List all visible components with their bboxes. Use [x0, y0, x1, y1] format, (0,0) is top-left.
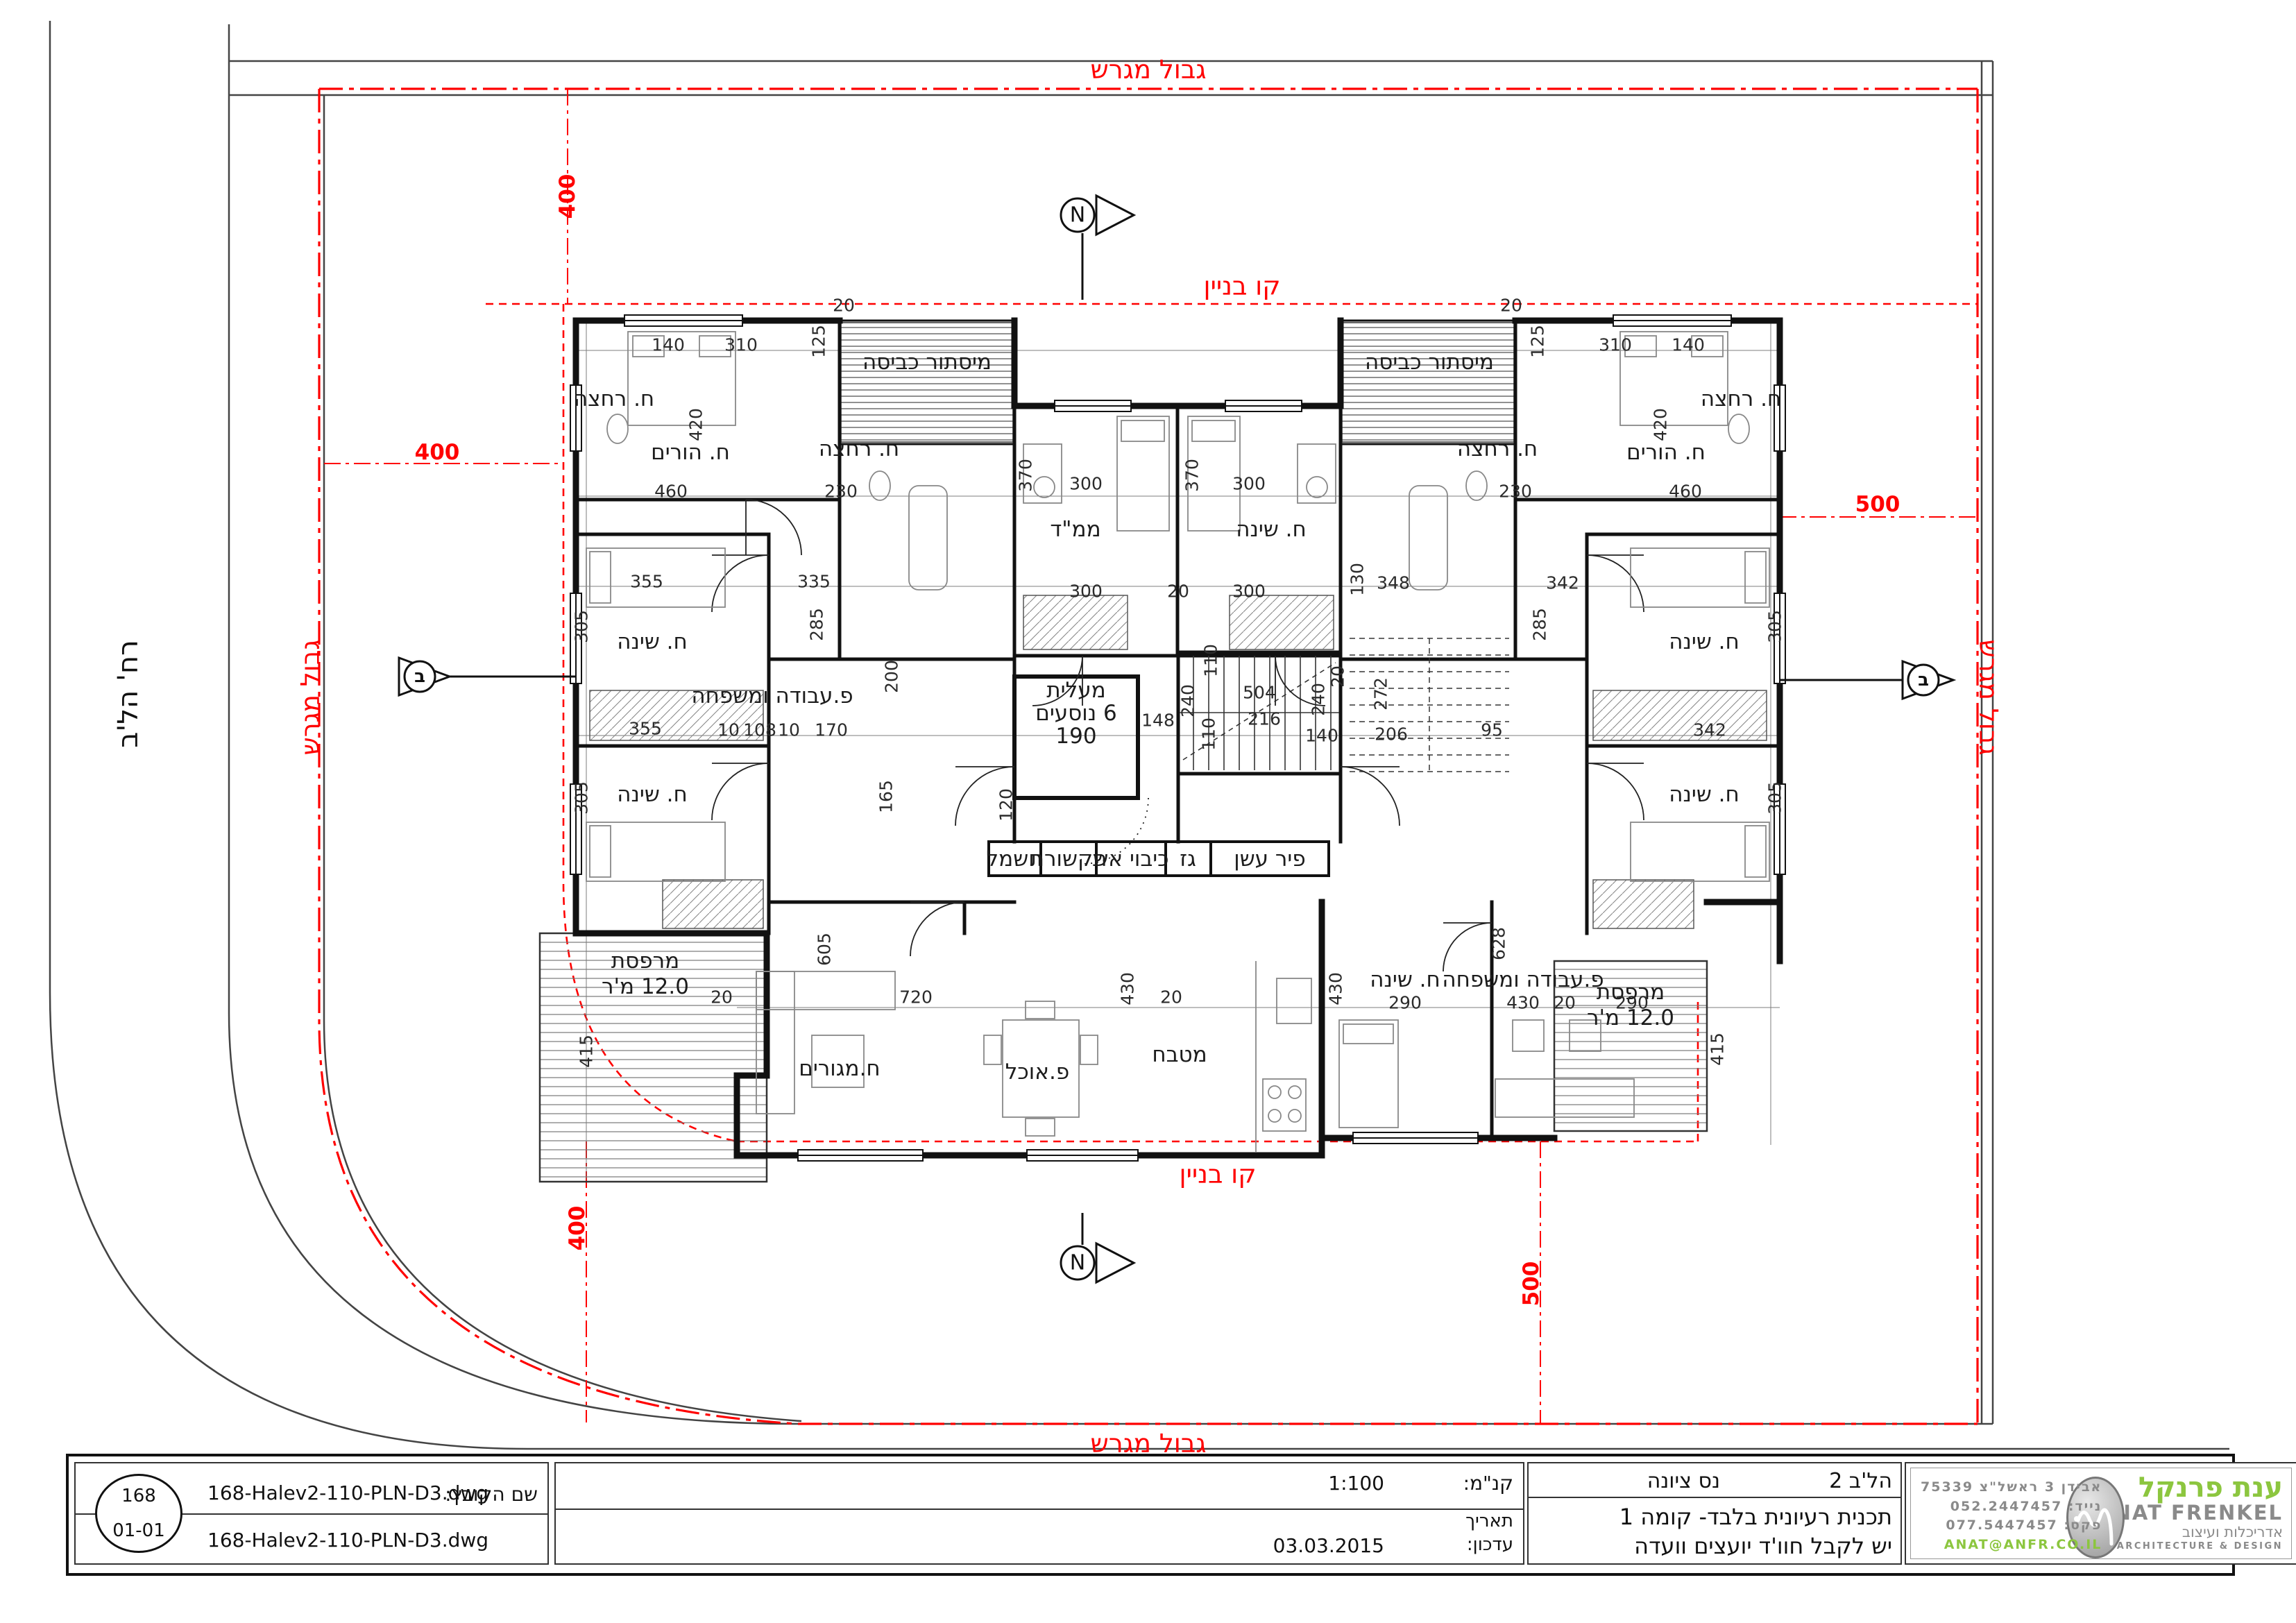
dim-label: 310: [724, 335, 758, 355]
room-label: כיבוי אש: [1093, 847, 1168, 872]
architect-fax: פקס: 077.5447457: [1921, 1516, 2102, 1536]
dim-label: 355: [630, 572, 663, 592]
dim-label: 20: [1554, 993, 1576, 1013]
room-label: ח. הורים: [651, 440, 730, 465]
room-label: מיסתור כביסה: [862, 350, 992, 375]
architect-email: ANAT@ANFR.CO.IL: [1921, 1536, 2102, 1555]
room-label: ח. שינה: [1669, 629, 1740, 654]
dim-label: 300: [1069, 474, 1103, 494]
room-label: 12.0 מ'ר: [602, 974, 689, 999]
plot-boundary-label-right: גבול מגרש: [1974, 640, 2004, 756]
architect-address: אבידן 3 ראשל"צ 75339: [1921, 1478, 2102, 1497]
dim-label: 110: [1201, 644, 1221, 677]
dim-label: 305: [572, 781, 592, 815]
dim-label: 415: [577, 1035, 597, 1068]
room-label: ח. רחצה: [1701, 386, 1781, 411]
dim-label: 342: [1693, 720, 1726, 740]
file-name-label: שם הקובץ:: [445, 1483, 538, 1506]
dim-label: 415: [1708, 1033, 1728, 1066]
building-line-label-top: קו בניין: [1204, 271, 1281, 301]
room-label: ח. רחצה: [819, 436, 899, 461]
dim-label: 420: [686, 408, 706, 441]
dim-label: 335: [797, 572, 831, 592]
dim-label: 125: [809, 325, 829, 358]
file-info-box: 168 01-01 168-Halev2-110-PLN-D3.dwg 168-…: [74, 1462, 549, 1565]
dim-label: 20: [1500, 296, 1522, 316]
room-label: מיסתור כביסה: [1365, 350, 1494, 375]
sheet-number-circle: 168 01-01: [95, 1474, 182, 1553]
room-label: ח. רחצה: [1457, 436, 1538, 461]
red-offset-dim: 500: [1519, 1261, 1544, 1307]
dim-label: 290: [1615, 993, 1649, 1013]
room-label: 190: [1055, 724, 1096, 749]
red-offset-dim: 400: [565, 1206, 590, 1251]
scale-box-divider: [556, 1509, 1523, 1510]
architect-name-en: ANAT FRENKEL: [2097, 1502, 2283, 1524]
dim-label: 20: [711, 987, 733, 1008]
room-label: ח. שינה: [617, 782, 688, 807]
dim-label: 420: [1651, 408, 1671, 441]
dim-label: 370: [1182, 459, 1202, 492]
room-label: ח. שינה: [1370, 967, 1440, 992]
dim-label: 20: [1160, 987, 1182, 1008]
room-label: פ.אוכל: [1005, 1060, 1069, 1085]
project-city: נס ציונה: [1647, 1469, 1720, 1493]
dim-label: 430: [1118, 972, 1138, 1005]
date-label-2: עדכון:: [1467, 1534, 1513, 1555]
dim-label: 206: [1375, 724, 1408, 745]
dim-label: 310: [1599, 335, 1632, 355]
dim-label: 140: [1305, 726, 1338, 746]
dim-label: 10: [717, 720, 740, 740]
sheet-number-top: 168: [97, 1486, 180, 1506]
room-label: ח. הורים: [1626, 440, 1706, 465]
architect-box: ענת פרנקל ANAT FRENKEL אדריכלות ועיצוב A…: [1905, 1462, 2296, 1565]
scale-value: 1:100: [1328, 1472, 1384, 1495]
dim-label: 370: [1016, 459, 1036, 492]
building-line-label-bottom: קו בניין: [1180, 1159, 1257, 1189]
dim-label: 240: [1309, 683, 1329, 716]
architect-box-frame: ענת פרנקל ANAT FRENKEL אדריכלות ועיצוב A…: [1910, 1468, 2292, 1559]
dim-label: 20: [1328, 665, 1348, 688]
project-note-2: יש לקבל חוו'ד יועצים וועדה: [1634, 1533, 1892, 1559]
dim-label: 300: [1232, 581, 1266, 602]
dim-label: 230: [1499, 482, 1532, 502]
dim-label: 460: [654, 482, 688, 502]
dim-label: 95: [1481, 720, 1503, 740]
room-label: 6 נוסעים: [1035, 701, 1116, 726]
dim-label: 165: [876, 780, 896, 813]
dim-label: 130: [1347, 563, 1368, 596]
dim-label: 305: [1765, 781, 1785, 815]
dim-label: 20: [833, 296, 855, 316]
date-label-1: תאריך: [1465, 1511, 1513, 1531]
dim-label: 170: [815, 720, 848, 740]
dim-label: 348: [1377, 573, 1410, 593]
dim-label: 300: [1232, 474, 1266, 494]
dim-label: 430: [1326, 972, 1346, 1005]
file-name-2: 168-Halev2-110-PLN-D3.dwg: [207, 1529, 488, 1552]
dim-label: 430: [1506, 993, 1540, 1013]
dim-label: 230: [824, 482, 858, 502]
plot-boundary-label-top: גבול מגרש: [1091, 55, 1207, 85]
red-offset-dim: 400: [555, 174, 580, 219]
room-label: ח. רחצה: [574, 386, 654, 411]
north-letter-bottom: N: [1070, 1251, 1085, 1275]
room-label: מטבח: [1152, 1042, 1207, 1067]
dim-label: 120: [996, 788, 1017, 822]
room-label: פ.עבודה ומשפחה: [691, 683, 853, 708]
title-block: 168 01-01 168-Halev2-110-PLN-D3.dwg 168-…: [66, 1454, 2235, 1576]
room-label: ח. שינה: [617, 629, 688, 654]
dim-label: 272: [1371, 677, 1391, 711]
dim-label: 140: [652, 335, 685, 355]
project-note-1: תכנית רעיונית בלבד- קומה 1: [1619, 1504, 1892, 1530]
red-offset-dim: 400: [415, 440, 460, 465]
room-label: ממ"ד: [1050, 517, 1100, 542]
architect-contact: אבידן 3 ראשל"צ 75339 נייד: 052.2447457 פ…: [1921, 1478, 2102, 1554]
dim-label: 110: [1199, 717, 1219, 751]
dim-label: 285: [807, 608, 827, 641]
dim-label: 125: [1528, 325, 1548, 358]
dim-label: 290: [1388, 993, 1422, 1013]
dim-label: 140: [1672, 335, 1705, 355]
dim-label: 342: [1546, 573, 1579, 593]
dim-label: 240: [1178, 684, 1198, 717]
dim-label: 355: [629, 719, 662, 739]
architect-sub-en: ARCHITECTURE & DESIGN: [2097, 1540, 2283, 1553]
section-letter-left: ב: [414, 666, 425, 687]
dim-label: 300: [1069, 581, 1103, 602]
dim-label: 10: [778, 720, 800, 740]
architect-names: ענת פרנקל ANAT FRENKEL אדריכלות ועיצוב A…: [2097, 1474, 2283, 1554]
north-letter-top: N: [1070, 203, 1085, 228]
room-label: פיר עשן: [1234, 847, 1305, 872]
dim-label: 148: [1141, 711, 1175, 731]
dim-label: 216: [1248, 709, 1281, 729]
dim-label: 200: [882, 660, 902, 693]
room-label: מעלית: [1046, 678, 1105, 703]
dim-label: 108: [743, 720, 776, 740]
project-name: הל'ב 2: [1829, 1469, 1892, 1493]
scale-date-box: קנ"מ: 1:100 תאריך עדכון: 03.03.2015: [554, 1462, 1524, 1565]
dim-label: 305: [572, 610, 592, 643]
scale-label: קנ"מ:: [1463, 1472, 1513, 1495]
sheet-number-bottom: 01-01: [97, 1520, 180, 1541]
room-label: גז: [1180, 847, 1196, 872]
dim-label: 20: [1167, 581, 1189, 602]
dim-label: 285: [1530, 608, 1550, 641]
plot-boundary-label-left: גבול מגרש: [296, 640, 325, 756]
dim-label: 504: [1243, 683, 1276, 703]
dim-label: 720: [899, 987, 933, 1008]
dim-label: 460: [1669, 482, 1702, 502]
project-box-divider: [1529, 1497, 1900, 1498]
street-name-label: רח' הל'ב: [112, 640, 144, 747]
architect-sub-he: אדריכלות ועיצוב: [2097, 1524, 2283, 1540]
dim-label: 605: [815, 933, 835, 966]
architect-mobile: נייד: 052.2447457: [1921, 1497, 2102, 1517]
room-label: ח.מגורים: [799, 1056, 880, 1081]
labels-layer: גבול מגרש גבול מגרש גבול מגרש גבול מגרש …: [0, 0, 2296, 1623]
project-box: הל'ב 2 נס ציונה תכנית רעיונית בלבד- קומה…: [1527, 1462, 1902, 1565]
dim-label: 628: [1489, 927, 1509, 960]
section-letter-right: ב: [1918, 670, 1929, 690]
dim-label: 305: [1765, 610, 1785, 643]
red-offset-dim: 500: [1855, 492, 1900, 517]
room-label: ח. שינה: [1236, 517, 1307, 542]
floor-plan-sheet: גבול מגרש גבול מגרש גבול מגרש גבול מגרש …: [0, 0, 2296, 1623]
architect-name-he: ענת פרנקל: [2097, 1474, 2283, 1502]
room-label: פ.עבודה ומשפחה: [1442, 967, 1604, 992]
room-label: מרפסת: [611, 949, 679, 974]
date-value: 03.03.2015: [1273, 1534, 1384, 1557]
room-label: ח. שינה: [1669, 782, 1740, 807]
